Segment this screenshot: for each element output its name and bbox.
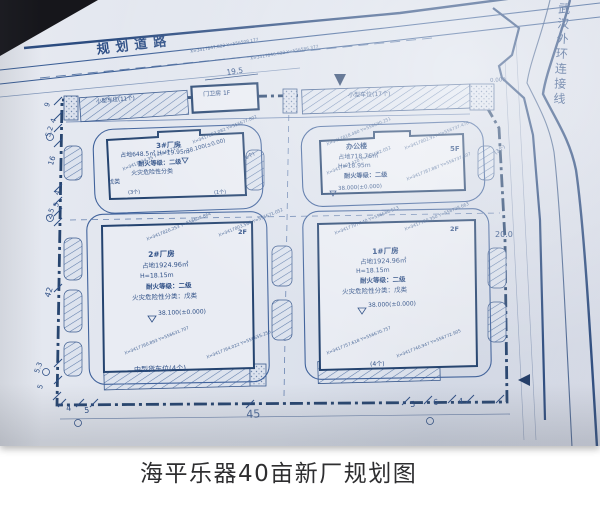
- dim-bottom-label: 6: [433, 399, 439, 407]
- building1-height: H=18.15m: [356, 268, 390, 275]
- guard-house-outline: [191, 83, 258, 112]
- office-name: 办公楼: [346, 143, 367, 151]
- dim-bottom-label: 4: [66, 405, 72, 413]
- building3-hazard-class: 戊类: [108, 179, 120, 186]
- blueprint-photo: 规划道路 武汉外环连接线 X=3417847.822 Y=556508.177 …: [0, 0, 600, 446]
- datum-label: 0.000: [490, 78, 506, 84]
- parking-count-4-label: (4个): [370, 361, 385, 368]
- building2-fire-rating: 耐火等级：二级: [146, 282, 192, 290]
- dim-right-label: 20.0: [495, 231, 513, 239]
- parking-count-3-label: (3个): [128, 190, 140, 196]
- building2-height: H=18.15m: [140, 273, 174, 280]
- building2-name: 2#厂房: [148, 250, 175, 258]
- dim-bottom-label: 4: [458, 398, 464, 406]
- caption: 海平乐器40亩新厂规划图: [140, 454, 417, 488]
- building1-floors: 2F: [450, 226, 459, 233]
- dim-bottom-label: 5: [410, 401, 416, 409]
- dim-top-label: 19.5: [226, 67, 244, 77]
- building1-fire-rating: 耐火等级：二级: [360, 276, 406, 284]
- dim-bottom-label: 45: [246, 408, 261, 420]
- office-floors: 5F: [450, 146, 460, 153]
- dim-bottom-label: 5: [84, 407, 90, 415]
- site-plan-drawing: [0, 0, 600, 446]
- building1-name: 1#厂房: [372, 247, 399, 255]
- building1-area: 占地1924.96㎡: [360, 257, 407, 265]
- building2-area: 占地1924.96㎡: [142, 261, 189, 269]
- parking-count-1-label: (1个): [214, 190, 226, 196]
- outer-ring-road-lines: [493, 0, 597, 446]
